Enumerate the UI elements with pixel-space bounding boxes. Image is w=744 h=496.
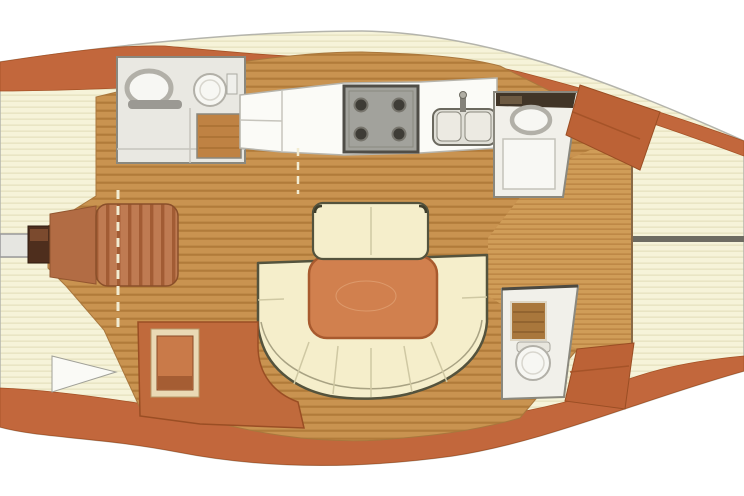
forward-head-basin [127,71,171,105]
forward-head-counter-bar [128,100,182,109]
bow-sprit [0,234,29,257]
galley-sink-left [437,112,461,141]
vberth-headboard [50,206,96,284]
forward-head-shower-grate [197,114,241,158]
galley-sink-right [465,112,491,141]
galley-stove [344,86,418,152]
floor-plan-svg [0,0,744,496]
forward-head-toilet-tank [227,74,237,94]
vberth-mattress [96,204,178,286]
side-settee-seat-shadow [158,376,192,389]
aft-head-starboard [502,286,578,399]
stern-traveller-line [633,236,744,242]
stove-burner-4 [393,128,406,141]
aft-head-stbd-shower-grate [511,302,546,340]
stove-burner-1 [355,99,368,112]
salon-table [309,256,437,338]
galley-divider-h [240,120,282,121]
forward-head-toilet [194,74,226,106]
aft-head-stbd-toilet [516,346,550,380]
stove-burner-2 [393,99,406,112]
aft-head-port-basin [512,107,550,133]
stove-burner-3 [355,128,368,141]
forward-head [117,57,245,163]
aft-head-port [494,92,578,197]
aft-head-port-locker [500,96,522,104]
anchor-windlass-top [30,229,48,241]
aft-head-port-shower [503,139,555,189]
galley-faucet-knob [460,92,467,99]
floor-plan [0,0,744,496]
